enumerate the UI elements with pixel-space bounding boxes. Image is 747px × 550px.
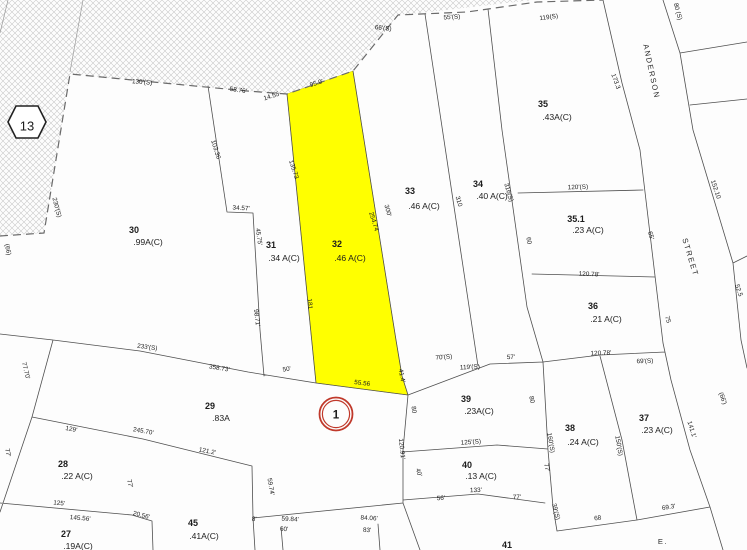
parcel-area: .46 A(C) bbox=[334, 253, 366, 263]
parcel-number: 32 bbox=[332, 239, 342, 249]
parcel-number: 34 bbox=[473, 179, 483, 189]
parcel-area: .21 A(C) bbox=[590, 314, 622, 324]
dimension-label: 34.57' bbox=[232, 205, 250, 213]
parcel-number: 39 bbox=[461, 394, 471, 404]
dimension-label: 181 bbox=[306, 298, 314, 310]
dimension-label: 77' bbox=[513, 494, 522, 501]
dimension-label: 60' bbox=[280, 526, 289, 533]
parcel-area: .40 A(C) bbox=[476, 191, 508, 201]
parcel-area: .19A(C) bbox=[63, 541, 93, 550]
parcel-area: .83A bbox=[212, 413, 230, 423]
parcel-number: 41 bbox=[502, 540, 512, 550]
parcel-area: .23 A(C) bbox=[641, 425, 673, 435]
dimension-label: 55'(S) bbox=[443, 14, 460, 22]
parcel-map-svg: 13 1 130'(S)58.76'14.5595.9'66'(S)55'(S)… bbox=[0, 0, 747, 550]
dimension-label: 120.78' bbox=[579, 271, 600, 279]
dimension-label: 69'(S) bbox=[636, 358, 653, 366]
dimension-label: 8' bbox=[251, 516, 256, 523]
parcel-number: 31 bbox=[266, 240, 276, 250]
parcel-area: .99A(C) bbox=[133, 237, 163, 247]
parcel-area: .13 A(C) bbox=[465, 471, 497, 481]
parcel-number: 38 bbox=[565, 423, 575, 433]
parcel-number: 35 bbox=[538, 99, 548, 109]
dimension-label: 77' bbox=[3, 448, 11, 457]
parcel-area: .41A(C) bbox=[189, 531, 219, 541]
parcel-number: 29 bbox=[205, 401, 215, 411]
dimension-label: 57' bbox=[507, 354, 516, 361]
dimension-label: 84.06' bbox=[360, 515, 378, 523]
dimension-label: 50' bbox=[282, 365, 291, 373]
map-sheet-badge[interactable]: 13 bbox=[8, 106, 46, 138]
dimension-label: 59.84' bbox=[281, 516, 299, 524]
parcel-number: 40 bbox=[462, 460, 472, 470]
parcel-number: 33 bbox=[405, 186, 415, 196]
parcel-area: .23 A(C) bbox=[572, 225, 604, 235]
dimension-label: 83' bbox=[363, 527, 372, 534]
parcel-number: 37 bbox=[639, 413, 649, 423]
parcel-area: .43A(C) bbox=[542, 112, 572, 122]
parcel-area: .34 A(C) bbox=[268, 253, 300, 263]
parcel-number: 27 bbox=[61, 529, 71, 539]
dimension-label: 70'(S) bbox=[435, 353, 452, 361]
parcel-area: .23A(C) bbox=[464, 406, 494, 416]
dimension-label: 125'(S) bbox=[460, 438, 481, 446]
parcel-number: 35.1 bbox=[567, 214, 585, 224]
parcel-number: 28 bbox=[58, 459, 68, 469]
street-name-label: E. bbox=[658, 537, 668, 546]
dimension-label: 80 bbox=[410, 406, 418, 414]
tax-map-canvas: 13 1 130'(S)58.76'14.5595.9'66'(S)55'(S)… bbox=[0, 0, 747, 550]
route-number-label: 1 bbox=[333, 410, 340, 422]
dimension-label: 120.78' bbox=[590, 350, 611, 358]
dimension-label: 125' bbox=[53, 500, 65, 508]
parcel-area: .22 A(C) bbox=[61, 471, 93, 481]
parcel-number: 36 bbox=[588, 301, 598, 311]
dimension-label: 133' bbox=[470, 487, 482, 494]
dimension-label: 130'(S) bbox=[132, 78, 153, 86]
parcel-area: .46 A(C) bbox=[408, 201, 440, 211]
sheet-badge-label: 13 bbox=[20, 118, 34, 133]
dimension-label: 120'(S) bbox=[568, 184, 589, 192]
parcel-number: 30 bbox=[129, 225, 139, 235]
dimension-label: 56' bbox=[437, 495, 446, 502]
parcel-number: 45 bbox=[188, 518, 198, 528]
dimension-label: 119'(S) bbox=[460, 363, 480, 371]
parcel-area: .24 A(C) bbox=[567, 437, 599, 447]
